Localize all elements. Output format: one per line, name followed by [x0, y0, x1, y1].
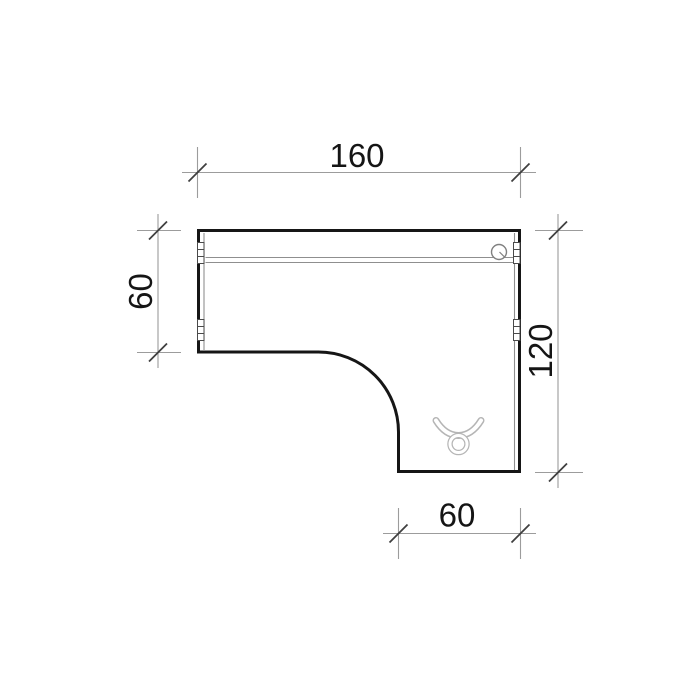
dimension-label-top: 160 — [329, 137, 384, 174]
panel-connector-icon-right-bottom — [514, 320, 521, 341]
dimension-top: 160 — [182, 137, 536, 198]
dimension-right: 120 — [522, 214, 583, 488]
panel-connector-icon-left-top — [198, 243, 205, 264]
panel-connector-icon-right-top — [514, 243, 521, 264]
dimension-label-bottom: 60 — [439, 497, 476, 534]
panel-connector-icon-left-bottom — [198, 320, 205, 341]
dimension-left: 60 — [122, 214, 181, 368]
dimension-label-left: 60 — [122, 273, 159, 310]
cable-grommet-icon — [492, 245, 507, 260]
technical-drawing-canvas: 160 60 120 60 — [0, 0, 700, 700]
l-desk-plan-drawing: 160 60 120 60 — [0, 0, 700, 700]
dimension-bottom: 60 — [383, 497, 536, 560]
dimension-label-right: 120 — [522, 323, 559, 378]
